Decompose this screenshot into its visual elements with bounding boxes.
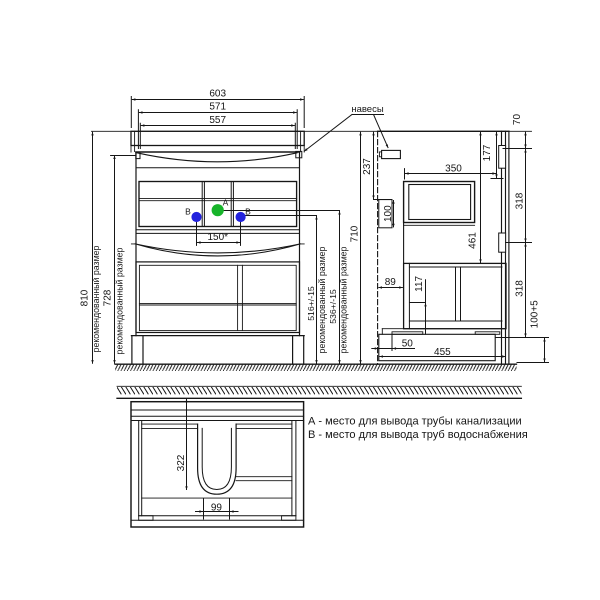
svg-text:461: 461 [467,232,478,249]
svg-text:рекомендованный размер: рекомендованный размер [339,246,349,353]
svg-text:89: 89 [385,277,397,288]
svg-text:318: 318 [514,280,525,297]
svg-text:571: 571 [209,101,226,112]
svg-text:455: 455 [434,347,451,358]
svg-text:322: 322 [176,454,187,471]
svg-text:810: 810 [79,289,90,306]
svg-text:А - место для вывода трубы кан: А - место для вывода трубы канализации [308,415,522,427]
svg-text:536+/-15: 536+/-15 [328,289,338,324]
svg-text:117: 117 [414,275,425,291]
svg-text:150*: 150* [208,232,229,243]
svg-text:237: 237 [362,158,373,175]
svg-text:99: 99 [211,502,223,513]
svg-text:603: 603 [209,88,226,99]
svg-text:навесы: навесы [351,104,384,115]
svg-text:318: 318 [514,192,525,209]
svg-text:B: B [185,207,191,217]
svg-text:350: 350 [445,163,462,174]
svg-text:В - место для вывода труб водо: В - место для вывода труб водоснабжения [308,429,528,441]
svg-text:рекомендованный размер: рекомендованный размер [91,245,101,352]
svg-text:B: B [245,206,251,216]
svg-text:рекомендованный размер: рекомендованный размер [115,247,125,354]
svg-text:177: 177 [482,144,493,161]
svg-text:100: 100 [383,205,394,222]
svg-text:710: 710 [349,225,360,242]
svg-text:A: A [223,198,229,208]
svg-text:рекомендованный размер: рекомендованный размер [317,246,327,353]
svg-text:70: 70 [512,114,523,126]
svg-text:50: 50 [402,339,414,350]
svg-text:516+/-15: 516+/-15 [306,286,316,321]
svg-text:557: 557 [209,115,226,126]
svg-text:728: 728 [102,289,113,306]
svg-text:100+5: 100+5 [529,300,540,329]
